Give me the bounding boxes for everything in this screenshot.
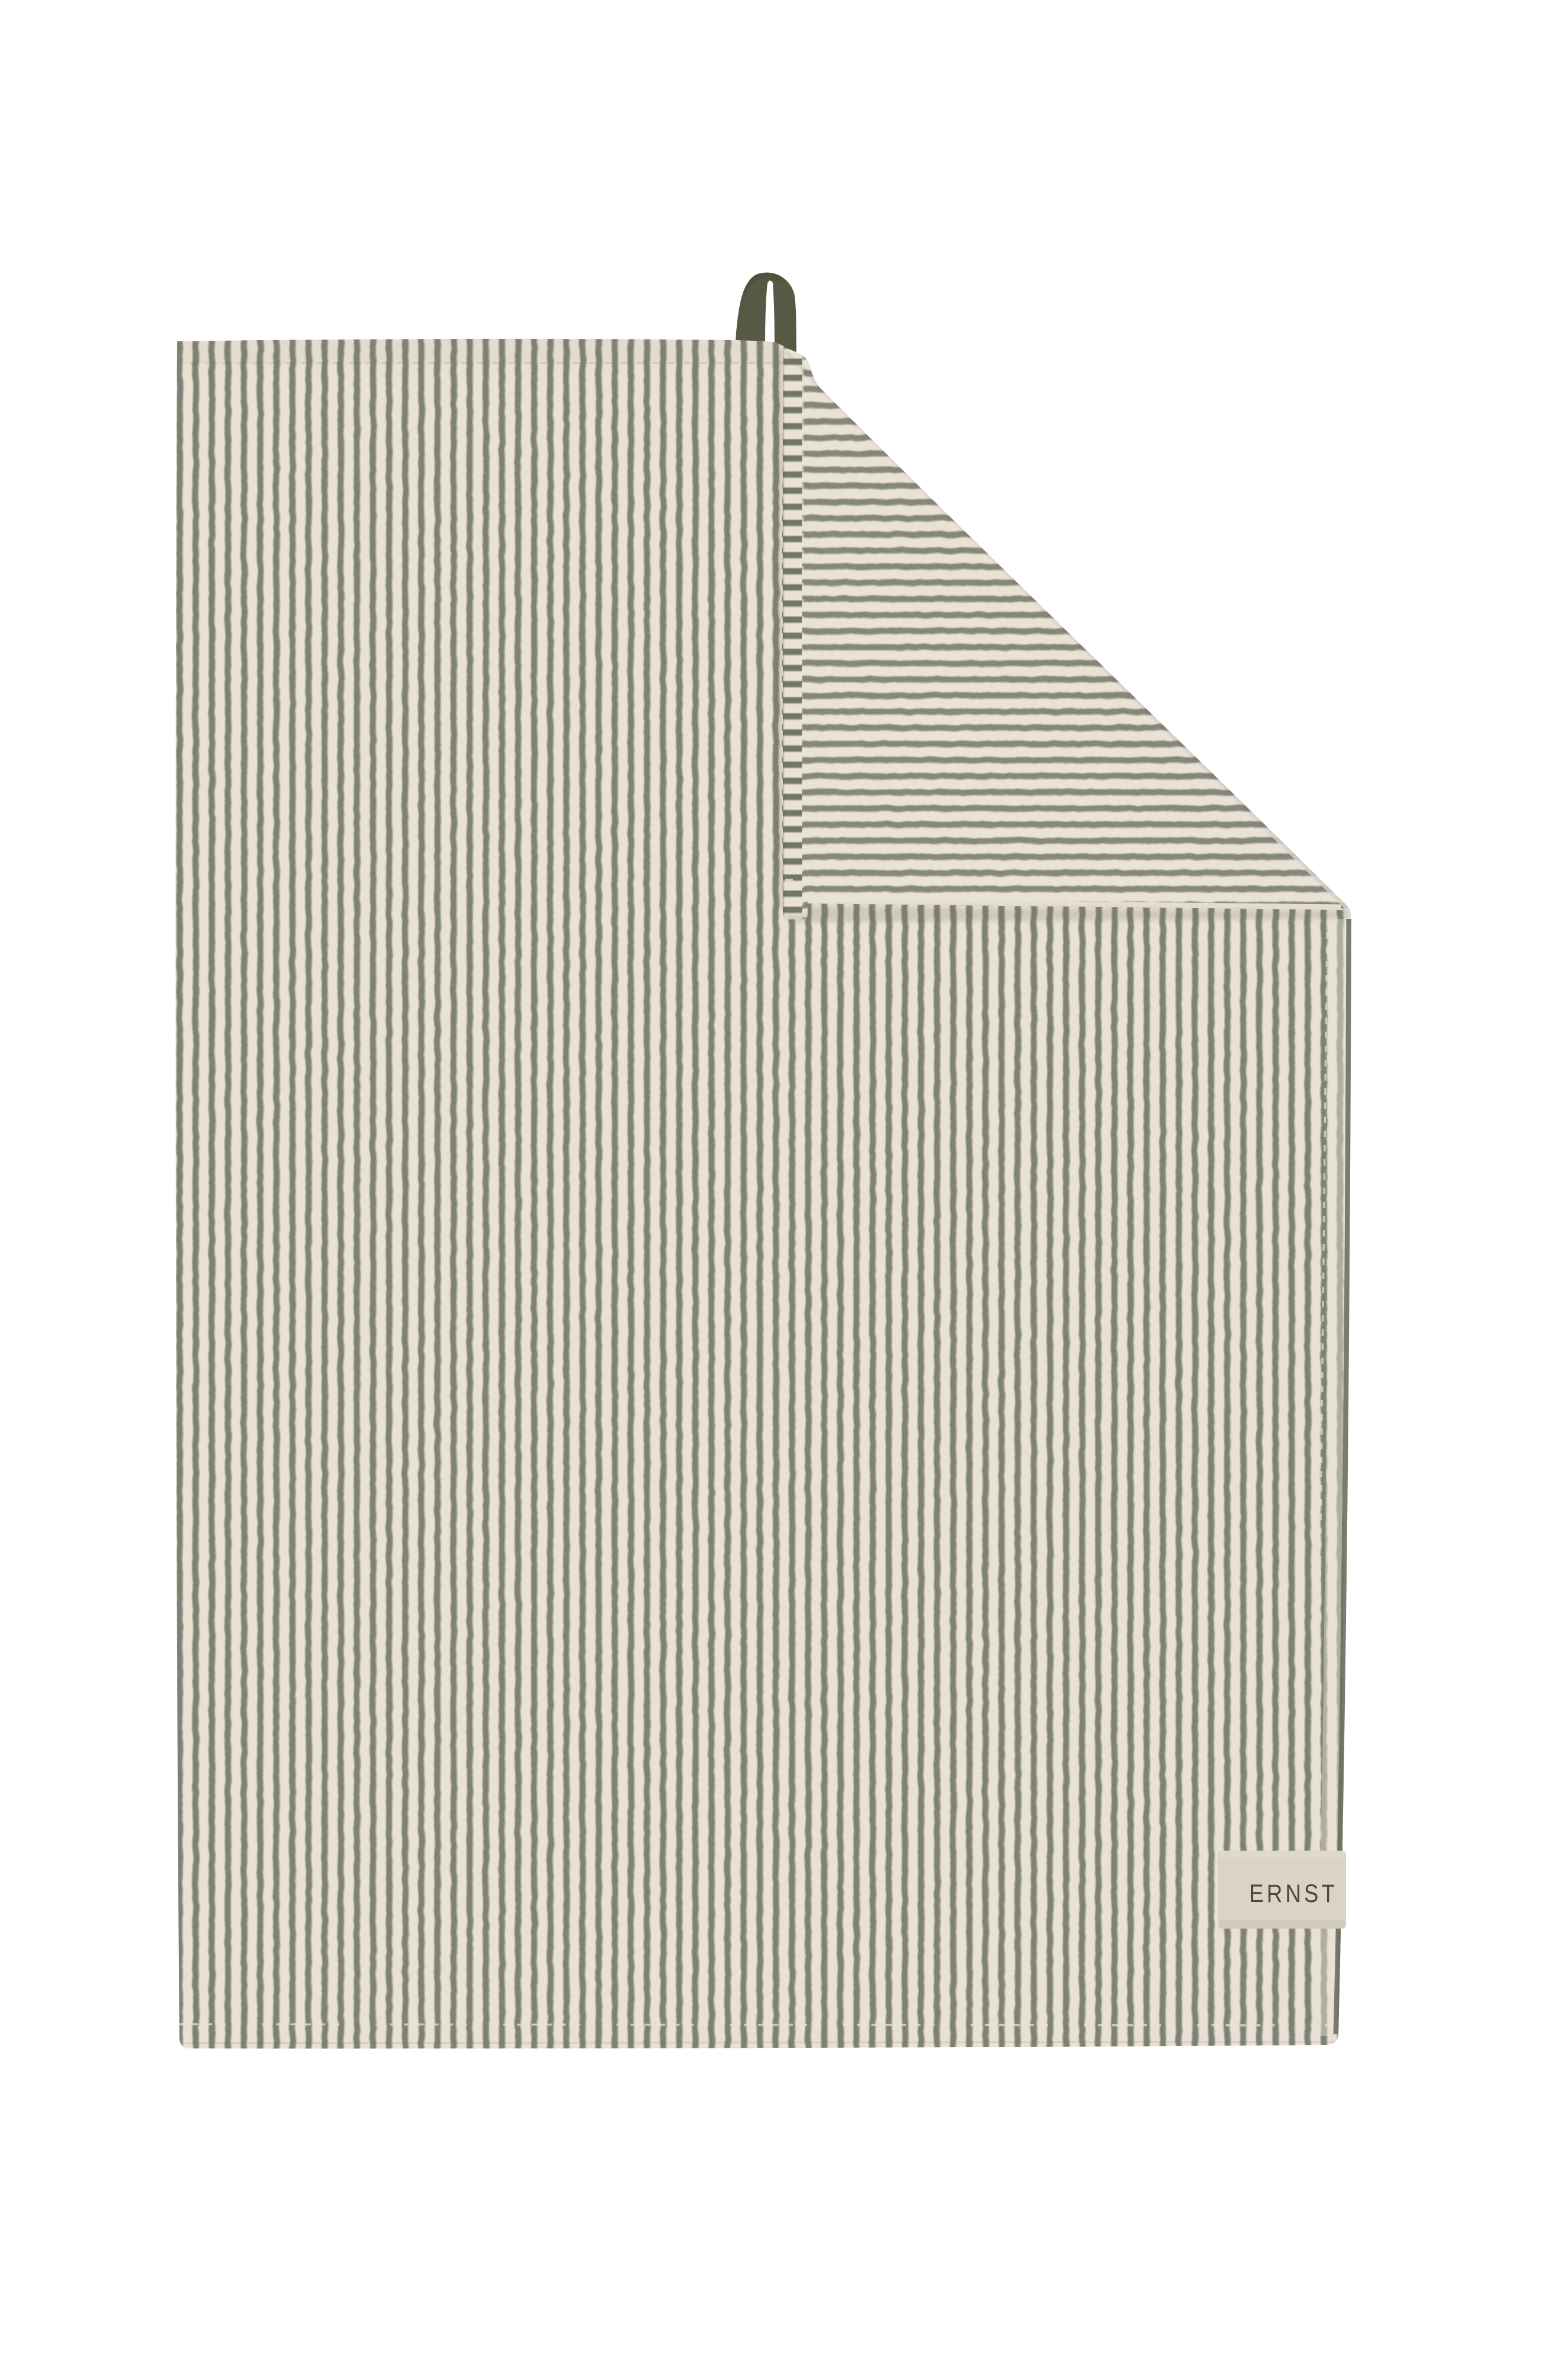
svg-text:ERNST: ERNST [1249,1880,1338,1908]
